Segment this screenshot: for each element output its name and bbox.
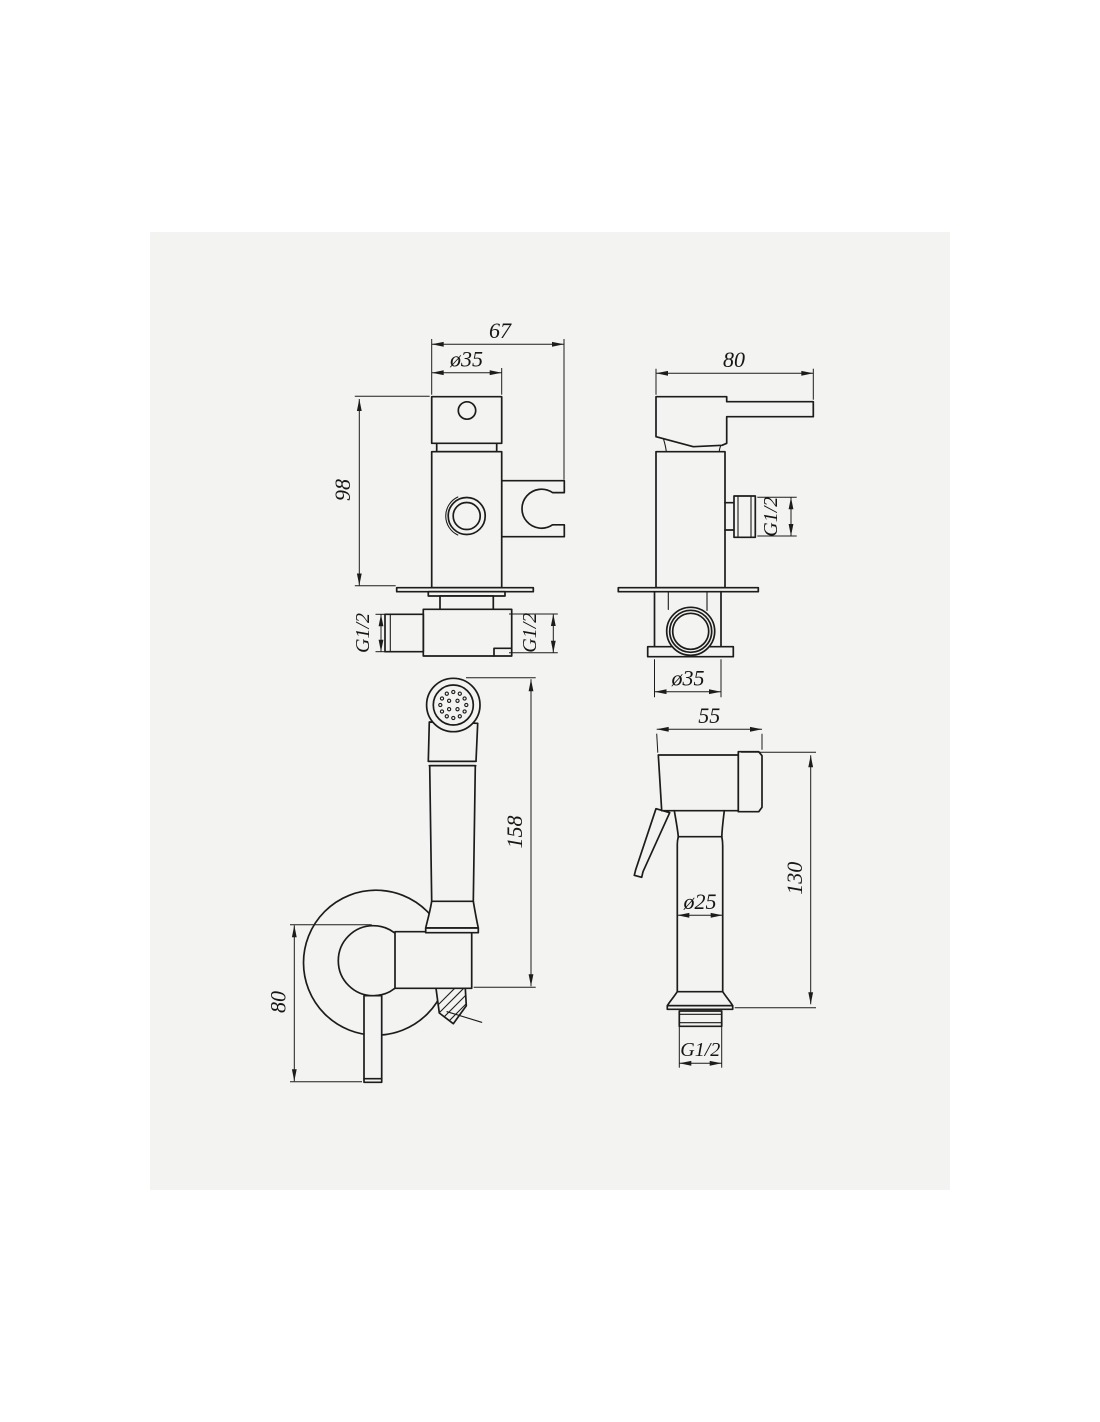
valve-body: [432, 452, 502, 588]
thread-nipple: [679, 1011, 721, 1026]
technical-drawing: 67 ø35 98 G1/2 G1/2: [0, 0, 1100, 1422]
outlet-collar: [734, 496, 755, 537]
dim-thread-left: G1/2: [352, 613, 374, 653]
product-drawing-page: 67 ø35 98 G1/2 G1/2: [0, 0, 1100, 1422]
wall-flange-side: [618, 588, 758, 592]
dim-sprayer-side-height: 130: [782, 862, 807, 895]
dim-valve-top-diameter: ø35: [449, 347, 483, 372]
sprayer-bell: [426, 901, 479, 928]
dim-base-diameter: ø35: [671, 666, 705, 691]
valve-body-side: [656, 452, 725, 588]
spray-face-outer: [427, 678, 480, 731]
sprayer-head-side: [658, 755, 738, 811]
bell-base-side: [667, 1006, 732, 1010]
holder-arm-block: [395, 932, 472, 989]
sprayer-bell-base: [426, 928, 479, 933]
dim-bottom-thread: G1/2: [680, 1039, 720, 1061]
dim-lever-height: 80: [266, 991, 291, 1013]
dim-body-diameter: ø25: [683, 889, 717, 914]
valve-neck: [437, 443, 497, 451]
dim-head-length: 55: [698, 703, 720, 728]
base-step-2: [440, 596, 493, 609]
dim-side-thread: G1/2: [760, 497, 782, 537]
spray-cap-side: [738, 752, 762, 812]
sprayer-handle: [430, 766, 476, 902]
sprayer-bell-side: [667, 992, 732, 1006]
dim-valve-depth: 80: [723, 347, 745, 372]
dim-valve-width: 67: [489, 318, 512, 343]
dim-thread-right: G1/2: [519, 613, 541, 653]
bottom-port-outer: [667, 607, 715, 655]
dim-valve-height: 98: [330, 479, 355, 501]
mixer-lever: [364, 996, 382, 1083]
dim-sprayer-height: 158: [502, 816, 527, 849]
drawing-sheet: [150, 232, 950, 1190]
